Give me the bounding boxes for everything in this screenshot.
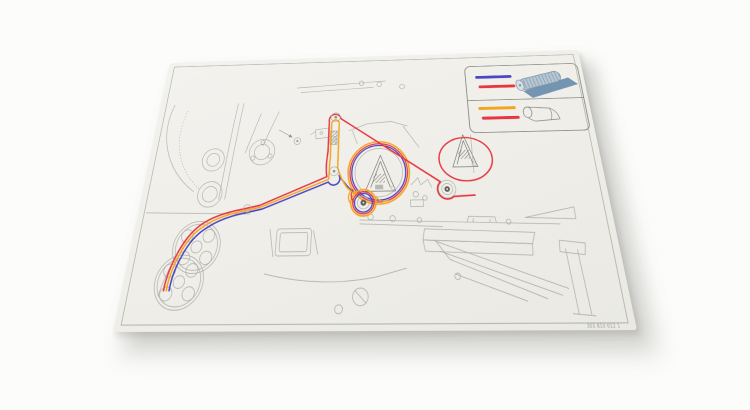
drum-roller-wrap bbox=[347, 141, 410, 204]
sheet-inner-border bbox=[121, 55, 628, 326]
leader-arrow bbox=[279, 130, 293, 138]
legend-row-net bbox=[474, 67, 581, 102]
legend-line-red-1 bbox=[479, 84, 516, 88]
legend-box bbox=[464, 63, 590, 132]
legend-line-red-2 bbox=[482, 116, 520, 120]
diagram-sheet-svg: 303 810 012 1 bbox=[113, 50, 637, 332]
legend-line-blue bbox=[475, 75, 512, 79]
lower-pulley bbox=[330, 167, 339, 176]
net-roll-icon bbox=[514, 67, 579, 100]
legend-line-orange bbox=[478, 106, 516, 110]
diagram-sheet: 303 810 012 1 bbox=[113, 50, 637, 332]
support-post bbox=[558, 240, 598, 316]
highlight-ellipse bbox=[438, 137, 495, 181]
part-number: 303 810 012 1 bbox=[586, 323, 621, 330]
feed-mechanism bbox=[310, 128, 338, 145]
film-roll-icon bbox=[523, 106, 561, 121]
photo-background: 303 810 012 1 bbox=[0, 0, 750, 410]
legend-row-film bbox=[478, 105, 560, 123]
